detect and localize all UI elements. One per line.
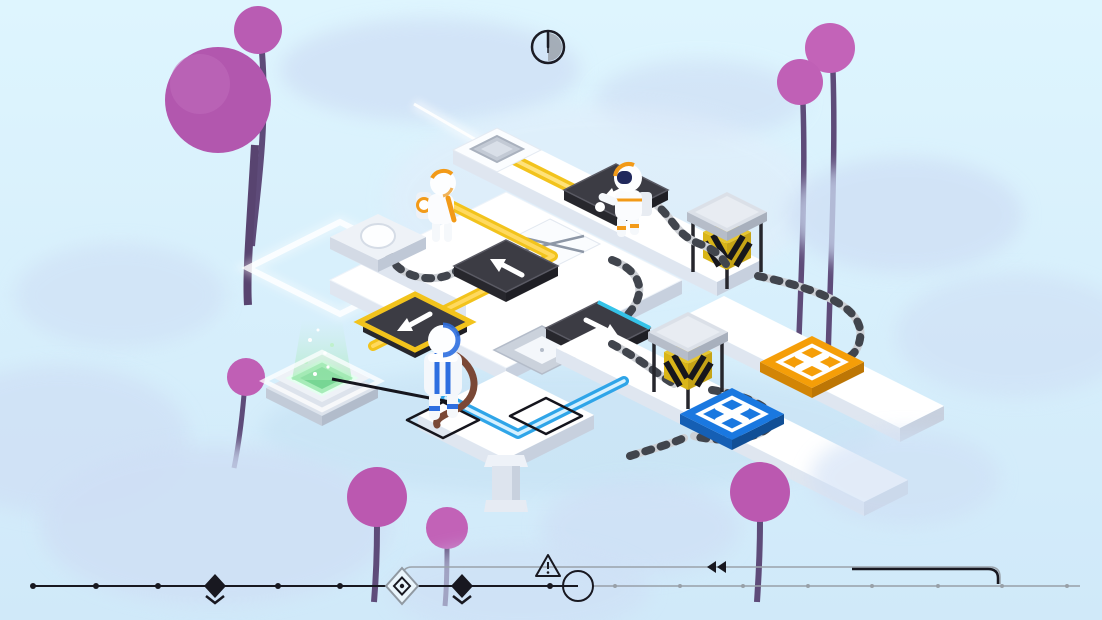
tree-foliage [777, 59, 823, 105]
game-screen [0, 0, 1102, 620]
tree-stem [757, 521, 760, 602]
visor [617, 171, 632, 184]
tree-foliage [234, 6, 282, 54]
round-button[interactable] [361, 224, 395, 248]
tree-foliage [730, 462, 790, 522]
tree-foliage [227, 358, 265, 396]
tree-foliage [347, 467, 407, 527]
tree-stem [374, 526, 377, 602]
tree-foliage [426, 507, 468, 549]
